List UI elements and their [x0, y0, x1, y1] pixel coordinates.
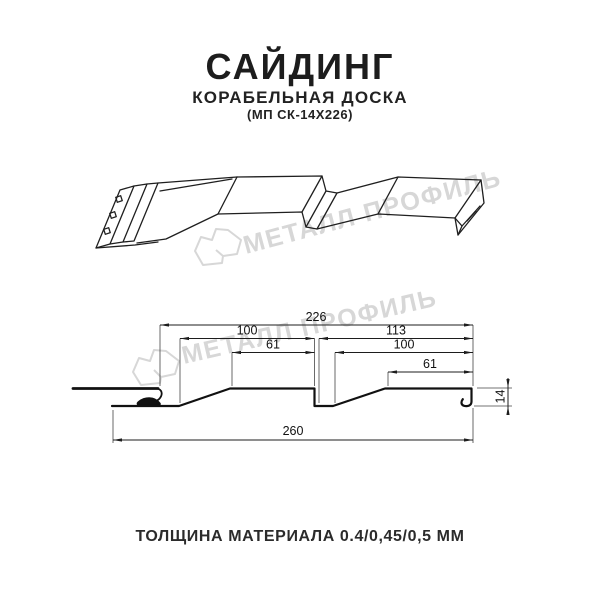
dimension-lines [113, 325, 508, 440]
nail-hole [116, 196, 123, 203]
brand-watermark-text: МЕТАЛЛ ПРОФИЛЬ [240, 164, 504, 260]
metall-profil-logo-icon [133, 350, 179, 385]
dim-100-left: 100 [237, 324, 258, 338]
metall-profil-logo-icon [195, 229, 241, 265]
nail-hole [110, 212, 117, 219]
nail-strip [96, 186, 134, 248]
dim-61-left: 61 [266, 338, 280, 352]
dim-226: 226 [306, 310, 327, 324]
dim-61-right: 61 [423, 357, 437, 371]
material-thickness-note: ТОЛЩИНА МАТЕРИАЛА 0.4/0,45/0,5 ММ [0, 528, 600, 546]
extension-lines [113, 325, 512, 443]
profile-outline [112, 389, 472, 407]
dim-260: 260 [283, 424, 304, 438]
cross-section-profile [73, 389, 472, 407]
nail-hole [104, 228, 111, 235]
lock-seam [137, 398, 160, 406]
dim-100-right: 100 [394, 338, 415, 352]
lock-fold [96, 183, 158, 248]
dim-14: 14 [494, 390, 508, 404]
dim-113: 113 [386, 324, 406, 338]
technical-drawing-canvas: МЕТАЛЛ ПРОФИЛЬ МЕТАЛЛ ПРОФИЛЬ [0, 0, 600, 600]
product-drawing-page: САЙДИНГ КОРАБЕЛЬНАЯ ДОСКА (МП СК-14Х226)… [0, 0, 600, 600]
